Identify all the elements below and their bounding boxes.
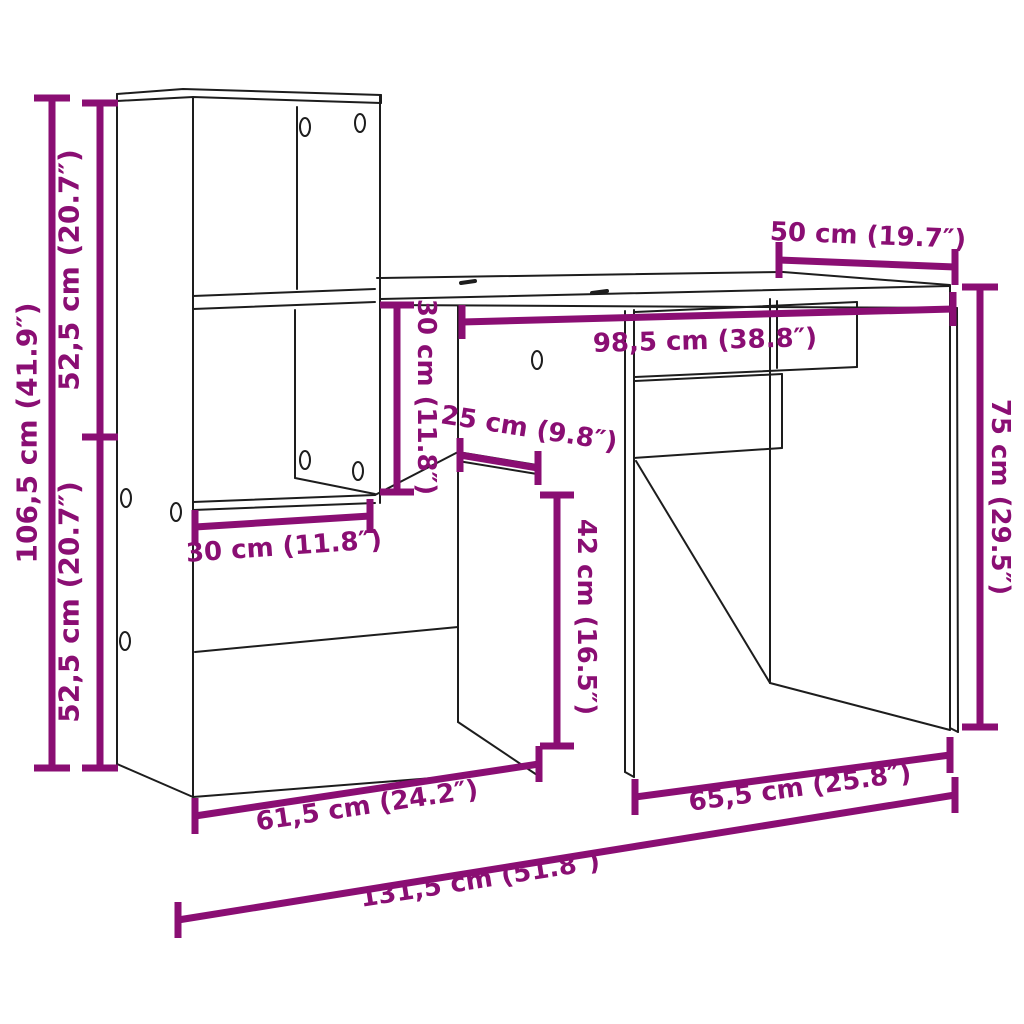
- shelf-column-top-slab: [117, 89, 381, 103]
- top-compartment: [297, 107, 365, 289]
- dim-label: 30 cm (11.8″): [185, 525, 383, 569]
- dim-label: 42 cm (16.5″): [571, 519, 601, 715]
- dim-floor-clearance: 42 cm (16.5″): [540, 495, 601, 746]
- dimension-diagram: 106,5 cm (41.9″) 52,5 cm (20.7″) 52,5 cm…: [0, 0, 1024, 1024]
- desktop: [377, 272, 957, 308]
- dim-desk-height: 75 cm (29.5″): [962, 287, 1015, 727]
- cam-hole: [171, 503, 181, 521]
- dim-hutch-clearance: 30 cm (11.8″): [380, 299, 441, 495]
- desktop-fitting-mark: [592, 291, 607, 293]
- dim-label: 30 cm (11.8″): [411, 299, 441, 495]
- dim-label: 50 cm (19.7″): [769, 217, 966, 255]
- dim-desktop-width: 98,5 cm (38.8″): [462, 292, 953, 359]
- dim-label: 106,5 cm (41.9″): [11, 302, 44, 563]
- cable-hole: [353, 462, 363, 480]
- dim-upper-half-height: 52,5 cm (20.7″): [53, 103, 119, 437]
- cam-hole: [120, 632, 130, 650]
- middle-shelf: [193, 289, 375, 309]
- cable-hole: [300, 451, 310, 469]
- dim-label: 52,5 cm (20.7″): [53, 481, 86, 723]
- middle-compartment: [295, 310, 375, 494]
- dim-label: 52,5 cm (20.7″): [53, 149, 86, 391]
- dim-cabinet-width: 61,5 cm (24.2″): [195, 746, 539, 837]
- cam-hole: [121, 489, 131, 507]
- dim-label: 131,5 cm (51.8″): [358, 846, 602, 914]
- back-panel: [634, 301, 782, 683]
- cable-hole: [300, 118, 310, 136]
- middle-leg: [625, 310, 634, 777]
- dim-lower-half-height: 52,5 cm (20.7″): [53, 437, 119, 768]
- dim-label: 75 cm (29.5″): [985, 399, 1015, 595]
- desktop-fitting-mark: [461, 281, 475, 283]
- shelf-column-left-panel: [117, 97, 193, 797]
- cable-hole: [532, 351, 542, 369]
- diagram-svg: 106,5 cm (41.9″) 52,5 cm (20.7″) 52,5 cm…: [0, 0, 1024, 1024]
- cable-hole: [355, 114, 365, 132]
- dim-label: 25 cm (9.8″): [439, 400, 620, 458]
- dim-desktop-depth: 50 cm (19.7″): [769, 217, 966, 285]
- dim-label: 98,5 cm (38.8″): [592, 323, 817, 359]
